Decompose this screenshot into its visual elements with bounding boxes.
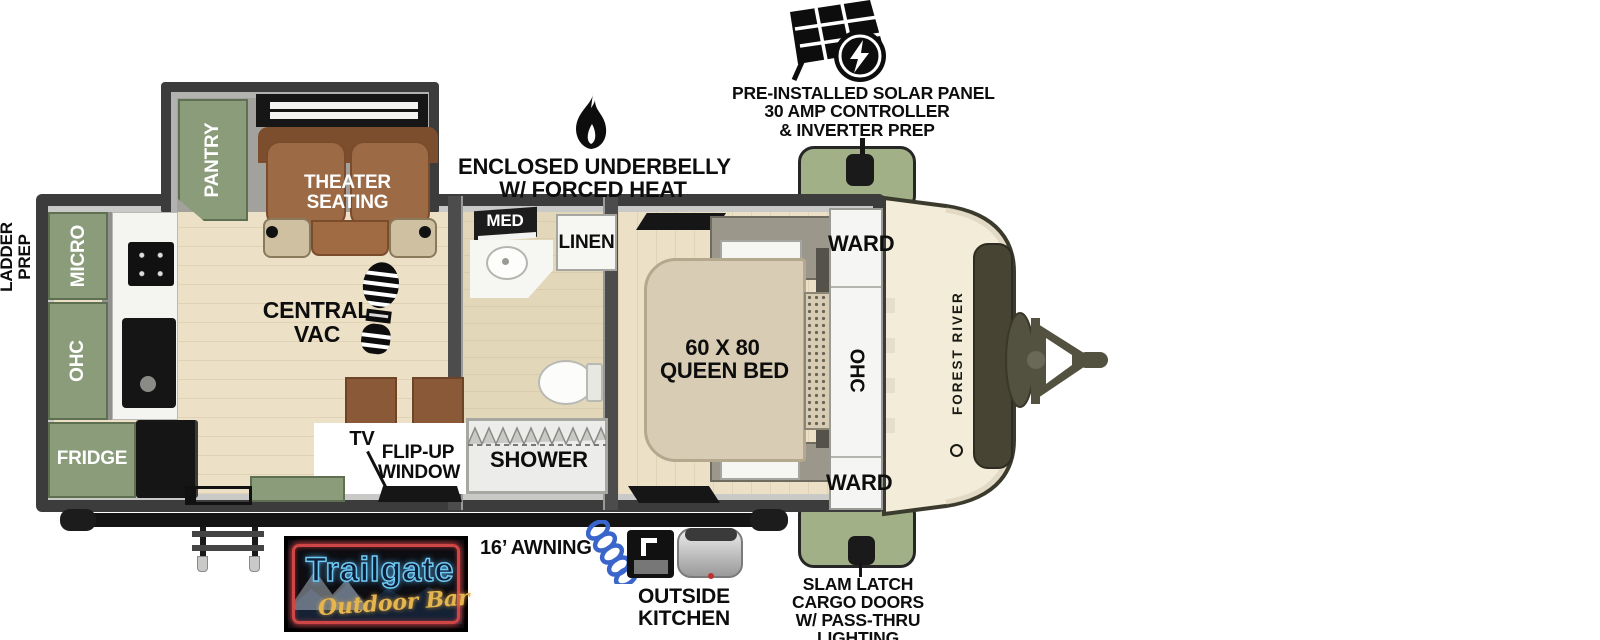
toilet-tank <box>586 363 603 402</box>
ottoman <box>345 377 397 426</box>
kitchen-sink-unit <box>122 318 176 408</box>
micro-label: MICRO <box>69 215 89 297</box>
trailer-hitch <box>1004 302 1114 420</box>
outside-griddle <box>677 528 743 578</box>
wardrobe-divider <box>831 286 881 288</box>
theater-armrest-right <box>389 218 437 258</box>
brand-emblem <box>950 444 963 457</box>
griddle-knob <box>708 573 714 579</box>
bedroom-bottom-window <box>628 486 720 503</box>
ohc-bedroom-label: OHC <box>845 341 866 401</box>
ohc-left-label: OHC <box>68 331 88 391</box>
ottoman <box>412 377 464 426</box>
theater-seating-label: THEATERSEATING <box>290 173 405 213</box>
griddle-lid-opening <box>685 528 737 541</box>
solar-callout: PRE-INSTALLED SOLAR PANEL 30 AMP CONTROL… <box>732 84 982 139</box>
entry-step-tread <box>192 531 264 537</box>
fridge-label: FRIDGE <box>50 449 134 469</box>
forced-heat-flame-icon <box>564 92 618 154</box>
ward-bottom-label: WARD <box>826 471 886 494</box>
shower-label: SHOWER <box>490 448 586 471</box>
slam-latch-callout: SLAM LATCH CARGO DOORS W/ PASS-THRU LIGH… <box>788 575 928 640</box>
sink-drain <box>140 376 156 392</box>
entry-step-tread <box>192 545 264 551</box>
jack-wheel <box>1027 351 1045 369</box>
entry-step-foot <box>249 556 260 572</box>
awning-bar-cap-right <box>750 509 788 531</box>
awning-bar-cap-left <box>60 509 96 531</box>
slideout-window <box>256 94 428 127</box>
awning-callout: 16’ AWNING <box>480 538 590 559</box>
queen-bed-label: 60 X 80QUEEN BED <box>660 336 785 383</box>
bath-sink-drain <box>502 258 509 265</box>
window-stripe <box>270 102 418 109</box>
solar-panel-icon <box>770 0 902 84</box>
tv-cabinet <box>250 476 345 502</box>
cap-seam <box>886 298 895 313</box>
ladder-prep-callout: LADDER PREP <box>0 201 34 313</box>
outside-kitchen-panel <box>634 560 668 574</box>
living-bottom-window <box>378 486 462 502</box>
hitch-coupler <box>1078 352 1108 368</box>
trailgate-logo: Trailgate Outdoor Bar <box>284 536 468 632</box>
shower-curtain <box>468 422 606 448</box>
ward-top-label: WARD <box>828 232 888 255</box>
logo-title: Trailgate <box>292 552 468 588</box>
awning-bar <box>66 513 788 527</box>
theater-footrest <box>311 220 389 256</box>
entry-door-panel <box>185 486 196 505</box>
underbelly-callout: ENCLOSED UNDERBELLY W/ FORCED HEAT <box>458 155 728 202</box>
cargo-door-bottom-latch <box>848 536 875 565</box>
linen-label: LINEN <box>556 233 617 253</box>
window-stripe <box>270 112 418 119</box>
outside-faucet-spout <box>641 538 657 543</box>
forest-river-brand: FOREST RIVER <box>951 267 965 439</box>
bed-pillows <box>804 292 832 430</box>
rv-floorplan-diagram: PANTRY THEATERSEATING MICRO OHC FRIDGE C… <box>0 0 1600 640</box>
wardrobe-divider <box>831 456 881 458</box>
cargo-door-top-latch <box>846 154 874 186</box>
cupholder <box>419 226 431 238</box>
cap-seam <box>886 378 895 393</box>
pantry-label: PANTRY <box>203 115 223 205</box>
entry-step-foot <box>197 556 208 572</box>
cooktop <box>128 242 174 286</box>
flip-up-window-label: FLIP-UPWINDOW <box>378 443 458 483</box>
cap-seam <box>886 338 895 353</box>
theater-armrest-left <box>263 218 311 258</box>
outside-kitchen-callout: OUTSIDE KITCHEN <box>630 586 738 631</box>
cupholder <box>266 226 278 238</box>
med-label: MED <box>476 212 534 230</box>
outside-kitchen-box <box>627 530 674 578</box>
cap-seam <box>886 418 895 433</box>
